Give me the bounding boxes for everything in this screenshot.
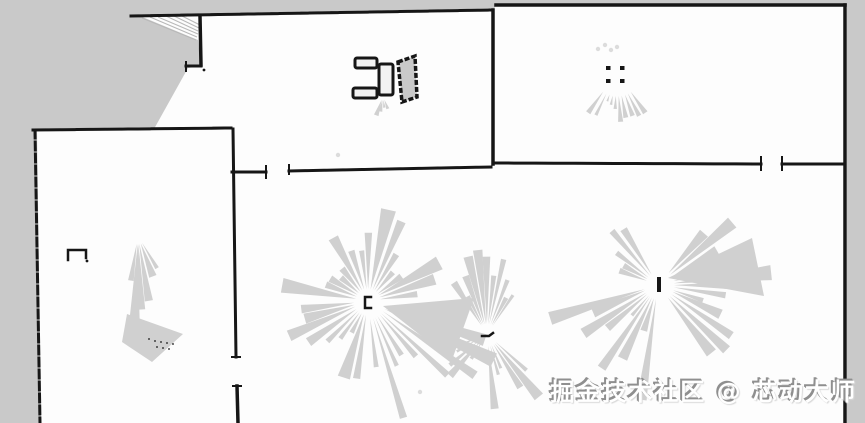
obstacle-box-2 (379, 64, 393, 95)
watermark-text: 掘金技术社区 @ 芯动大师 (550, 372, 857, 407)
robot-pose-marker-b (657, 277, 661, 292)
hall-left-wall (200, 16, 201, 65)
left-room-top-wall (33, 128, 231, 130)
obstacle-tilted-panel (398, 56, 417, 102)
left-divider-wall-lower (237, 386, 238, 423)
slam-map-screenshot: 掘金技术社区 @ 芯动大师 (0, 0, 865, 423)
unknown-right-margin (847, 5, 865, 423)
obstacle-box-3 (353, 88, 377, 98)
occupancy-grid-map (0, 0, 865, 423)
obstacle-box-1 (355, 58, 377, 68)
top-right-room-bottom-wall-left (496, 163, 761, 164)
